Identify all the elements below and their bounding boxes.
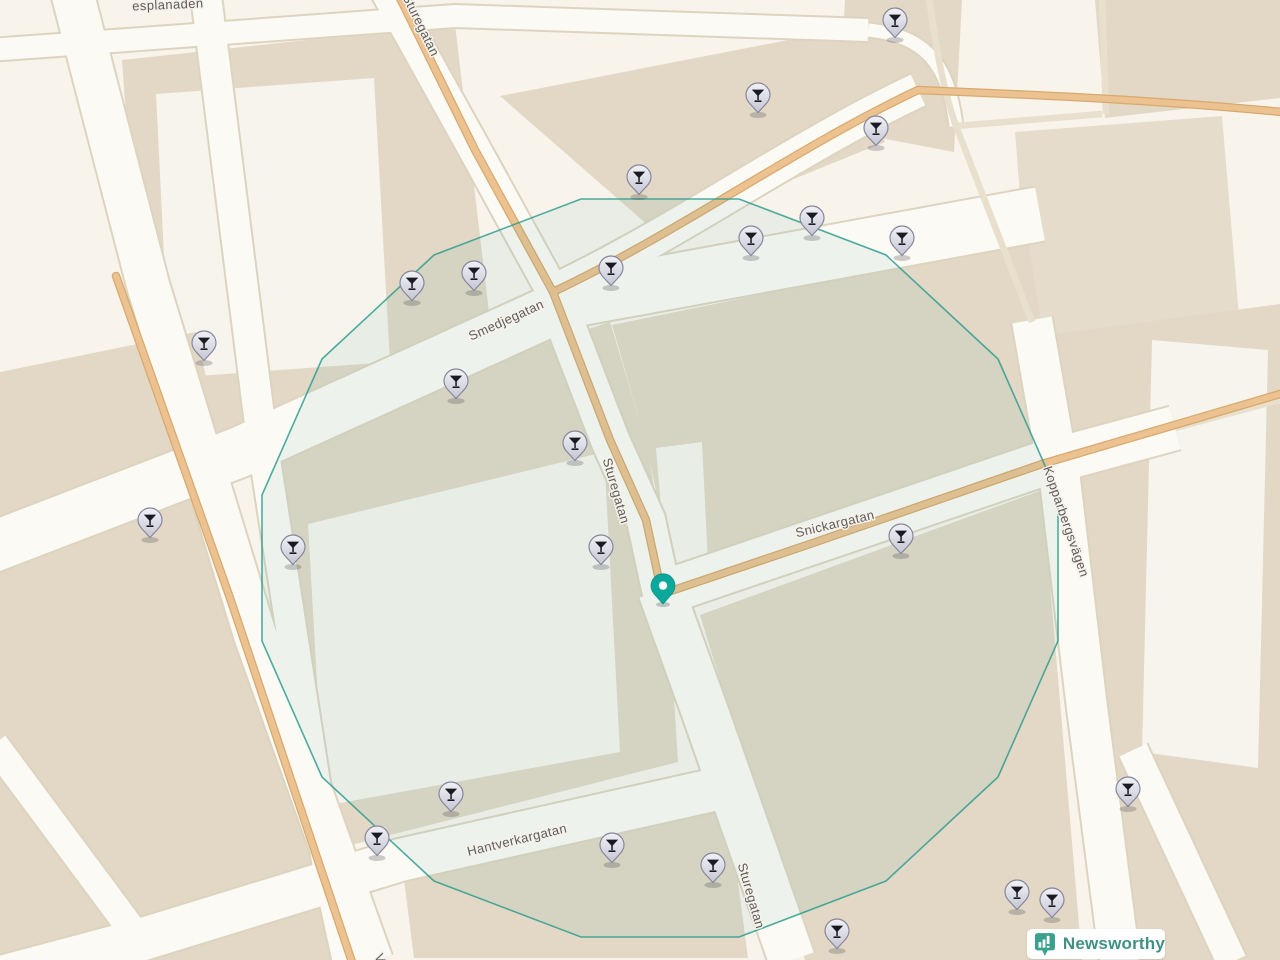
- map-viewport: esplanaden Sturegatan Smedjegatan Stureg…: [0, 0, 1280, 960]
- newsworthy-attribution[interactable]: Newsworthy: [1027, 929, 1165, 959]
- attribution-brand-text: Newsworthy: [1063, 934, 1165, 954]
- map-canvas[interactable]: esplanaden Sturegatan Smedjegatan Stureg…: [0, 0, 1280, 960]
- newsworthy-logo-icon: [1034, 931, 1056, 958]
